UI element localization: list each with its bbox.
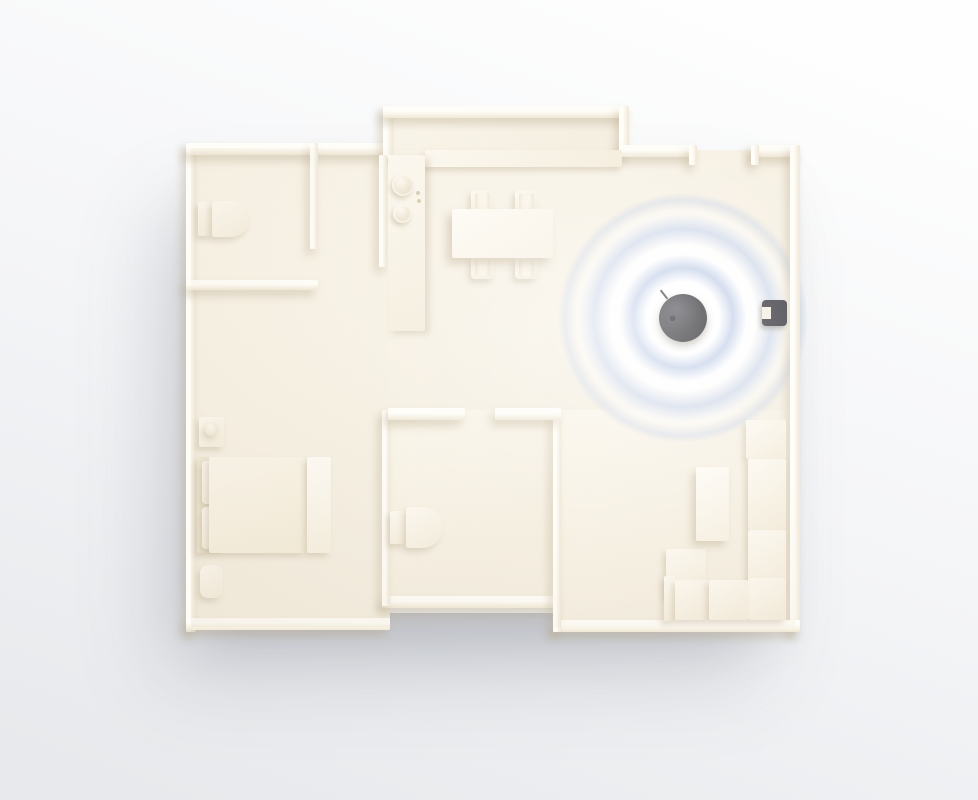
- hub-button: [668, 314, 677, 323]
- sofa-cushion: [748, 459, 786, 530]
- wall-living-bottom: [553, 620, 800, 632]
- wall-bathroom-middle-top-right-segment: [495, 408, 561, 420]
- wall-alcove-top: [383, 106, 629, 118]
- sofa-corner-cushion: [748, 578, 786, 620]
- wall-bathroom-top-bottom: [186, 280, 318, 290]
- stove-knob: [417, 199, 421, 203]
- wall-outer-right: [790, 145, 800, 632]
- wall-closet-right: [379, 155, 387, 267]
- wall-bedroom-bottom: [186, 618, 390, 630]
- sofa-cushion: [675, 580, 709, 620]
- coffee-table: [696, 467, 729, 541]
- kitchen-counter-top: [425, 150, 622, 167]
- dining-chair: [471, 257, 494, 279]
- sofa-armrest-left: [664, 576, 675, 621]
- stove-burner-small: [393, 204, 412, 223]
- toilet-tank: [198, 202, 212, 236]
- stove-knob: [416, 191, 420, 195]
- dining-table: [452, 209, 553, 258]
- door-sensor-notch: [762, 307, 771, 319]
- wall-door-stub-left: [689, 145, 697, 165]
- sofa-cushion: [709, 580, 748, 620]
- wall-bathroom-middle-top-left-segment: [388, 408, 465, 420]
- bed-foot-bench: [307, 457, 331, 553]
- sofa-armrest-top: [746, 420, 786, 459]
- wall-bathroom-top-right: [310, 143, 318, 249]
- floor-bathroom-middle: [382, 410, 561, 600]
- wall-bathroom-middle-bottom: [382, 596, 561, 608]
- nightstand-lamp: [205, 422, 219, 436]
- stove-burner-large: [392, 174, 414, 196]
- wall-living-left: [553, 410, 561, 632]
- toilet-tank: [390, 511, 406, 544]
- wall-living-top-left-segment: [619, 145, 697, 157]
- floor-plan-scene: [0, 0, 978, 800]
- ottoman: [200, 565, 223, 598]
- wall-door-stub-right: [751, 145, 759, 165]
- wall-bathroom-middle-left: [382, 410, 390, 606]
- dining-chair: [515, 257, 538, 279]
- wall-outer-left: [186, 143, 196, 632]
- smart-hub-device: [659, 294, 707, 342]
- bed-mattress: [209, 457, 305, 553]
- wall-outer-top-left: [186, 143, 389, 155]
